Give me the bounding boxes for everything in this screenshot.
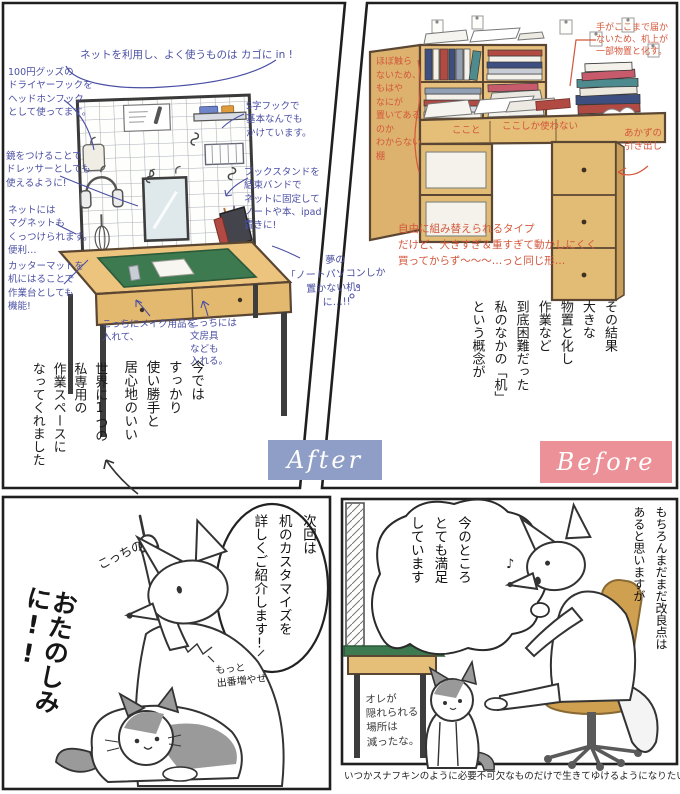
- teaser-speech-bubble-text: 次回は 机のカスタマイズを 詳しくご紹介します!: [226, 514, 320, 666]
- note-desk-type: 自由に組み替えられるタイプ だけど、大きすぎ＆重すぎて動かしにくく 買ってからず…: [398, 222, 597, 269]
- storage-bin: [426, 152, 486, 188]
- cat-thought-text: オレが 隠れられる 場所は 減ったな。: [365, 691, 419, 749]
- note-makeup: こっちにメイク用品を 入れて、: [102, 318, 196, 345]
- note-unopened-drawer: あかずの 引き出し: [624, 128, 662, 154]
- cat-aside-text: もっと 出番増やせ: [215, 659, 267, 690]
- improvement-side-note: もちろんまだまだ改良点は あると思いますが: [624, 506, 672, 668]
- music-note-icon: ♪: [506, 556, 514, 574]
- note-net-usage: ネットを利用し、よく使うものは カゴに in !: [80, 48, 293, 63]
- side-net: [346, 503, 364, 651]
- comic-page: ネットを利用し、よく使うものは カゴに in ! 100円グッズの ドライヤーフ…: [0, 0, 680, 794]
- note-mirror: 鏡をつけることで ドレッサーとしても 使えるように!: [6, 150, 91, 190]
- note-dream-desk: 夢の 「ノートパソコンしか 置かない机」 に…!!: [285, 252, 387, 311]
- desk-book-stack: [576, 62, 640, 114]
- after-badge: After: [268, 440, 382, 480]
- note-dryer-hook: 100円グッズの ドライヤーフックを ヘッドホンフック として使ってます。: [8, 66, 93, 119]
- wire-basket: [205, 143, 244, 164]
- note-here-only: ここしか使わない: [502, 120, 578, 133]
- note-cutter-mat: カッターマットを 机にはることで 作業台としても 機能!: [8, 260, 84, 313]
- after-result-text-1: 今では すっかり 使い勝手と 居心地のいい: [118, 360, 207, 515]
- note-s-hook: S字フックで 基本なんでも かけています。: [246, 100, 312, 140]
- before-badge: Before: [540, 441, 672, 483]
- satisfied-bubble-text: 今のところ とても満足 しています: [398, 516, 474, 642]
- note-unused-shelf: ほぼ触ら ないため、 もはや なにが 置いてある のか わからない 棚: [376, 56, 421, 164]
- note-hand-reach: 手がここまで届か ないため、机上が 一部物置と化す。: [596, 22, 668, 58]
- note-magnet: ネットには マグネットも くっつけられます。 便利…: [8, 204, 93, 257]
- after-result-text-2: 世界に1つの 私専用の 作業スペースに なってくれました: [26, 362, 109, 497]
- note-book-stand: ブックスタンドを 結束バンドで ネットに固定して ノートや本、ipad 置きに!: [244, 166, 322, 232]
- note-here: ここと: [452, 124, 481, 137]
- bottom-caption: いつかスナフキンのように必要不可欠なものだけで生きてゆけるようになりたい…: [344, 770, 677, 783]
